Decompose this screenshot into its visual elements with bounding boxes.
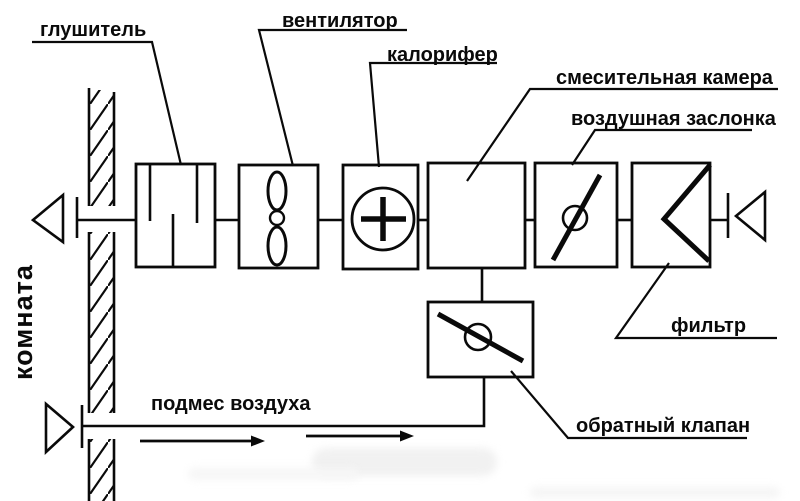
filter-label: фильтр — [671, 315, 746, 337]
filter-box — [632, 163, 710, 267]
air-damper-box — [535, 163, 617, 267]
damper-icon — [535, 163, 617, 267]
mixing-chamber-label: смесительная камера — [556, 67, 774, 89]
check-valve-box — [428, 302, 533, 377]
check-valve-icon — [428, 302, 533, 377]
outdoor-air-inlet-icon — [728, 192, 765, 240]
heater-icon — [352, 188, 414, 250]
silencer-box — [136, 164, 215, 267]
air-damper-leader-line — [572, 130, 752, 165]
mixing-chamber-box — [428, 163, 525, 268]
heater-box — [343, 165, 418, 269]
room-label: комната — [8, 264, 38, 380]
heater-leader-line — [370, 63, 497, 167]
intake-diffuser-icon — [46, 404, 82, 452]
fan-label: вентилятор — [282, 10, 398, 32]
scheme-svg: глушитель вентилятор калорифер смеситель… — [0, 0, 800, 501]
air-damper-label: воздушная заслонка — [571, 108, 777, 130]
fan-box — [239, 165, 318, 268]
fan-leader-line — [259, 30, 407, 166]
supply-diffuser-icon — [33, 195, 77, 242]
wall — [88, 88, 114, 501]
silencer-label: глушитель — [40, 19, 146, 41]
check-valve-label: обратный клапан — [576, 415, 750, 437]
airflow-arrow — [140, 431, 414, 447]
ventilation-scheme-diagram: глушитель вентилятор калорифер смеситель… — [0, 0, 800, 501]
heater-label: калорифер — [387, 44, 498, 66]
air-admix-label: подмес воздуха — [151, 393, 311, 415]
